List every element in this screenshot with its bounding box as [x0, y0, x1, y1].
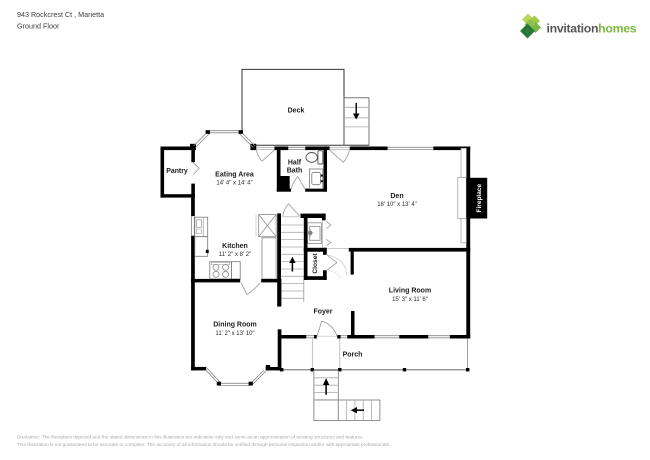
svg-text:Kitchen: Kitchen — [222, 243, 248, 250]
svg-text:18' 10" x 13' 4": 18' 10" x 13' 4" — [377, 202, 417, 208]
svg-text:14' 4" x 14' 4": 14' 4" x 14' 4" — [216, 181, 252, 187]
svg-text:Ground Floor: Ground Floor — [17, 22, 60, 31]
svg-text:15' 3" x 11' 6": 15' 3" x 11' 6" — [392, 297, 428, 303]
svg-text:943 Rockcrest Ct , Marietta: 943 Rockcrest Ct , Marietta — [17, 10, 104, 19]
svg-text:Living Room: Living Room — [389, 288, 431, 295]
svg-text:Den: Den — [390, 193, 403, 200]
svg-text:Bath: Bath — [287, 168, 303, 175]
svg-text:Closet: Closet — [312, 253, 319, 274]
svg-text:Pantry: Pantry — [166, 168, 188, 175]
svg-text:Deck: Deck — [288, 108, 305, 115]
svg-text:Fireplace: Fireplace — [476, 184, 483, 213]
svg-text:11' 2" x 8' 2": 11' 2" x 8' 2" — [219, 252, 251, 258]
svg-text:Eating Area: Eating Area — [215, 172, 254, 179]
svg-text:Disclaimer: The floorplans dep: Disclaimer: The floorplans depicted and … — [17, 435, 364, 441]
svg-text:Foyer: Foyer — [313, 309, 332, 316]
svg-text:Porch: Porch — [343, 352, 363, 359]
svg-text:Half: Half — [288, 160, 302, 167]
svg-text:invitationhomes: invitationhomes — [547, 22, 637, 36]
svg-text:11' 2" x 13' 10": 11' 2" x 13' 10" — [215, 331, 254, 337]
svg-text:Dining Room: Dining Room — [213, 322, 257, 329]
svg-text:This illustration is not guara: This illustration is not guaranteed to b… — [17, 442, 390, 448]
